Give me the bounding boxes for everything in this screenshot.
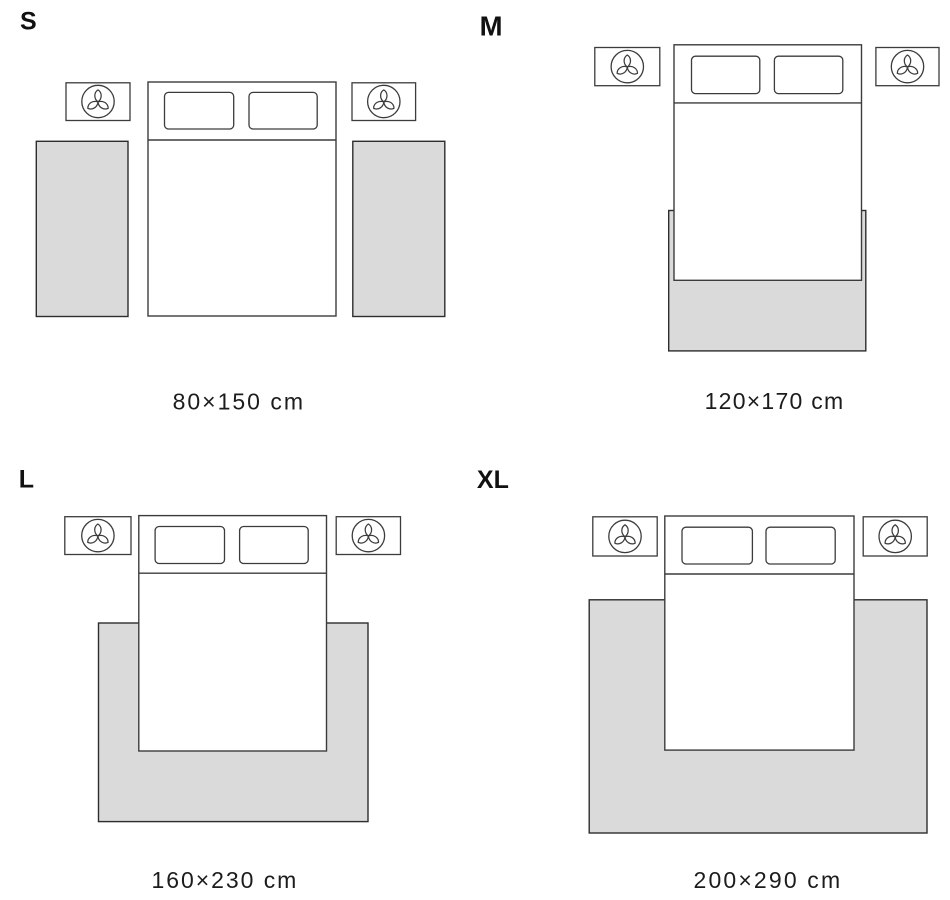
svg-text:120×170 cm: 120×170 cm [705, 388, 845, 414]
svg-text:160×230 cm: 160×230 cm [152, 867, 299, 893]
svg-text:80×150 cm: 80×150 cm [173, 389, 305, 415]
svg-text:L: L [19, 466, 34, 494]
svg-text:S: S [20, 7, 37, 35]
svg-text:M: M [480, 10, 503, 41]
svg-text:XL: XL [477, 466, 509, 494]
svg-text:200×290 cm: 200×290 cm [694, 867, 843, 893]
